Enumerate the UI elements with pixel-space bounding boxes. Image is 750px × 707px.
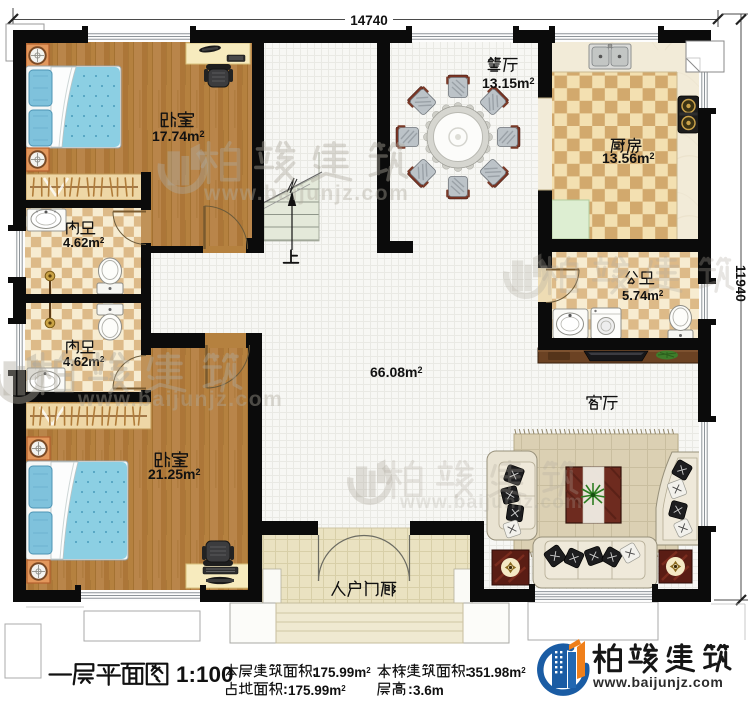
svg-text:www.baijunjz.com: www.baijunjz.com [399, 492, 583, 513]
svg-text:www.baijunjz.com: www.baijunjz.com [77, 388, 283, 411]
svg-text:14740: 14740 [350, 13, 388, 28]
svg-text:www.baijunjz.com: www.baijunjz.com [203, 182, 409, 205]
svg-text:175.99m2: 175.99m2 [288, 683, 346, 698]
svg-text:13.15m2: 13.15m2 [482, 75, 535, 91]
svg-text:11940: 11940 [733, 265, 748, 302]
svg-text:175.99m2: 175.99m2 [313, 665, 371, 680]
svg-text:4.62m2: 4.62m2 [63, 235, 105, 250]
svg-text:3.6m: 3.6m [413, 683, 444, 698]
svg-text:1:100: 1:100 [176, 662, 234, 687]
svg-text:21.25m2: 21.25m2 [148, 466, 201, 482]
svg-text:www.baijunjz.com: www.baijunjz.com [592, 674, 723, 690]
svg-text:351.98m2: 351.98m2 [468, 665, 526, 680]
svg-text:66.08m2: 66.08m2 [370, 364, 423, 380]
svg-text:17.74m2: 17.74m2 [152, 128, 205, 144]
svg-text:13.56m2: 13.56m2 [602, 150, 655, 166]
